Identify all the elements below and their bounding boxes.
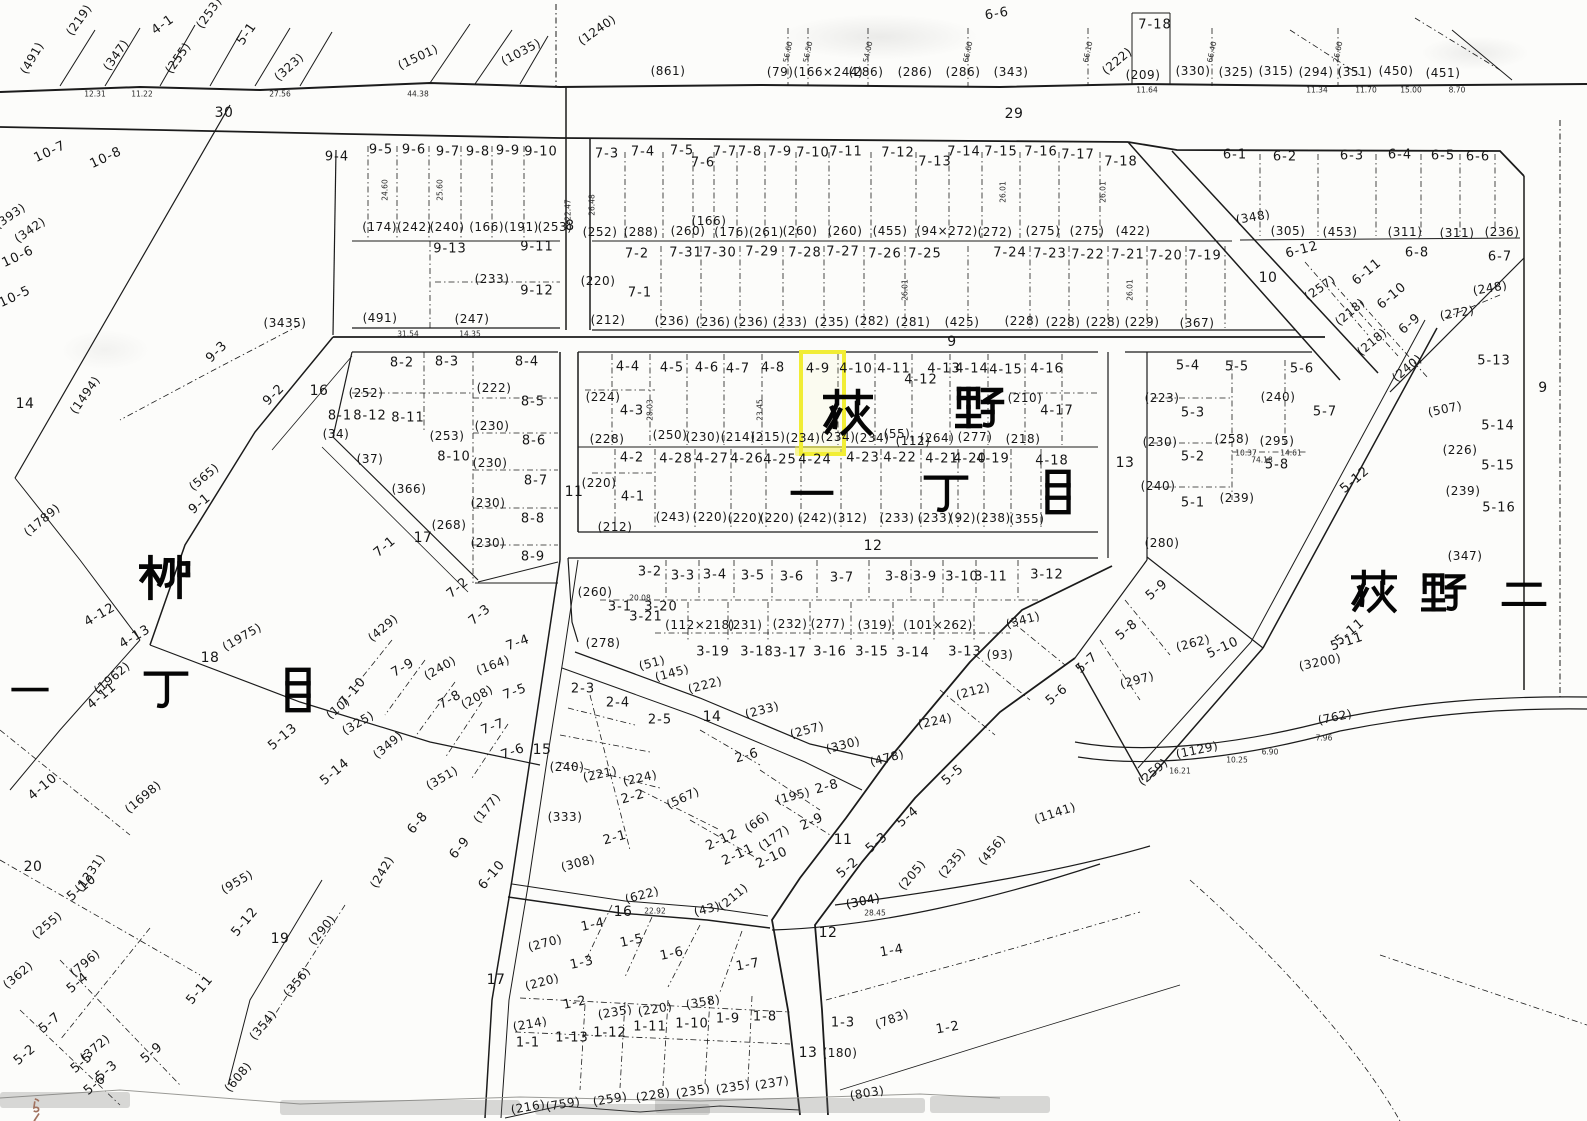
parcel-label: 5-8 bbox=[1265, 459, 1289, 472]
parcel-label: 8-6 bbox=[522, 435, 546, 448]
district-kanji bbox=[822, 388, 874, 438]
road-number: 8 bbox=[565, 219, 574, 233]
parcel-label: 5-13 bbox=[1477, 355, 1511, 368]
parcel-label: 7-1 bbox=[628, 287, 652, 300]
parcel-label: 7-2 bbox=[625, 248, 649, 261]
parcel-label: 7-4 bbox=[631, 146, 655, 159]
parcel-label: 7-22 bbox=[1071, 249, 1105, 262]
area-label: (101×262) bbox=[903, 619, 973, 631]
parcel-label: 6-6 bbox=[984, 5, 1010, 22]
parcel-label: 5-6 bbox=[1290, 363, 1314, 376]
area-label: (286) bbox=[946, 66, 981, 78]
area-label: (220) bbox=[582, 477, 617, 489]
road-number: 29 bbox=[1005, 107, 1024, 121]
road-number: 9 bbox=[1538, 381, 1547, 395]
area-label: (253) bbox=[430, 430, 465, 442]
area-label: (93) bbox=[987, 649, 1014, 661]
parcel-label: 3-16 bbox=[813, 646, 847, 659]
road-number: 16 bbox=[310, 384, 329, 398]
parcel-label: 6-8 bbox=[1405, 247, 1429, 260]
parcel-label: 1-10 bbox=[675, 1018, 709, 1031]
area-label: (234) bbox=[786, 432, 821, 444]
area-label: (453) bbox=[1323, 226, 1358, 238]
parcel-label: 7-19 bbox=[1188, 250, 1222, 263]
road-number: 9 bbox=[947, 335, 956, 349]
parcel-label: 6-4 bbox=[1388, 149, 1412, 162]
area-label: (319) bbox=[858, 619, 893, 631]
parcel-label: 4-8 bbox=[761, 362, 785, 375]
area-label: (260) bbox=[783, 225, 818, 237]
area-label: (325) bbox=[1219, 66, 1254, 78]
parcel-label: 7-11 bbox=[829, 146, 863, 159]
parcel-label: 7-17 bbox=[1061, 149, 1095, 162]
parcel-label: 3-6 bbox=[780, 571, 804, 584]
parcel-label: 9-8 bbox=[466, 146, 490, 159]
parcel-label: 4-5 bbox=[660, 362, 684, 375]
parcel-label: 4-22 bbox=[883, 452, 917, 465]
parcel-label: 7-12 bbox=[881, 147, 915, 160]
parcel-label: 7-27 bbox=[826, 246, 860, 259]
measurement: 24.60 bbox=[381, 179, 389, 200]
area-label: (450) bbox=[1379, 65, 1414, 77]
parcel-label: 7-7 bbox=[713, 146, 737, 159]
parcel-label: 3-11 bbox=[974, 571, 1008, 584]
area-label: (112×218) bbox=[665, 619, 735, 631]
road-number: 10 bbox=[1259, 271, 1278, 285]
area-label: (231) bbox=[728, 619, 763, 631]
area-label: (230) bbox=[1143, 436, 1178, 448]
measurement: 11.34 bbox=[1306, 86, 1327, 94]
area-label: (210) bbox=[1008, 392, 1043, 404]
area-label: (455) bbox=[873, 225, 908, 237]
road-number: 14 bbox=[703, 710, 722, 724]
parcel-label: 5-14 bbox=[1481, 420, 1515, 433]
area-label: (315) bbox=[1259, 65, 1294, 77]
area-label: (236) bbox=[696, 316, 731, 328]
parcel-label: 4-10 bbox=[839, 363, 873, 376]
measurement: 14.61 bbox=[1280, 449, 1301, 457]
road-number: 13 bbox=[799, 1046, 818, 1060]
measurement: 28.45 bbox=[864, 909, 885, 917]
parcel-label: 5-3 bbox=[1181, 407, 1205, 420]
parcel-label: 7-26 bbox=[868, 248, 902, 261]
measurement: 16.21 bbox=[1169, 767, 1190, 775]
parcel-label: 3-2 bbox=[638, 566, 662, 579]
parcel-label: 2-4 bbox=[606, 697, 630, 710]
parcel-label: 4-1 bbox=[621, 491, 645, 504]
parcel-label: 3-8 bbox=[885, 571, 909, 584]
area-label: (311) bbox=[1388, 226, 1423, 238]
measurement: 28.03 bbox=[646, 399, 654, 420]
parcel-label: 8-11 bbox=[391, 412, 425, 425]
area-label: (286) bbox=[849, 66, 884, 78]
area-label: (260) bbox=[828, 225, 863, 237]
area-label: (220) bbox=[693, 511, 728, 523]
parcel-label: 1-4 bbox=[879, 942, 905, 959]
scan-artifact bbox=[280, 1100, 520, 1115]
measurement: 8.70 bbox=[1449, 86, 1466, 94]
district-kanji bbox=[954, 382, 1006, 432]
road-number: 15 bbox=[533, 743, 552, 757]
area-label: (34) bbox=[323, 428, 350, 440]
area-label: (264) bbox=[920, 432, 955, 444]
area-label: (228) bbox=[590, 433, 625, 445]
parcel-label: 3-5 bbox=[741, 570, 765, 583]
parcel-label: 7-18 bbox=[1104, 156, 1138, 169]
area-label: (275) bbox=[1026, 225, 1061, 237]
parcel-label: 7-16 bbox=[1024, 146, 1058, 159]
measurement: 7.96 bbox=[1316, 734, 1333, 742]
area-label: (230) bbox=[471, 537, 506, 549]
area-label: (282) bbox=[855, 315, 890, 327]
parcel-label: 1-3 bbox=[831, 1017, 855, 1030]
area-label: (305) bbox=[1271, 225, 1306, 237]
parcel-label: 6-7 bbox=[1488, 251, 1512, 264]
area-label: (94×272) bbox=[916, 225, 978, 237]
measurement: 6.90 bbox=[1262, 748, 1279, 756]
area-label: (236) bbox=[734, 316, 769, 328]
road-number: 18 bbox=[201, 651, 220, 665]
parcel-label: 7-15 bbox=[984, 146, 1018, 159]
parcel-label: 4-14 bbox=[955, 363, 989, 376]
area-label: (223) bbox=[1145, 392, 1180, 404]
parcel-label: 4-25 bbox=[763, 454, 797, 467]
parcel-label: 9-9 bbox=[496, 145, 520, 158]
parcel-label: 4-4 bbox=[616, 361, 640, 374]
parcel-label: 2-3 bbox=[571, 683, 595, 696]
parcel-label: 7-30 bbox=[703, 247, 737, 260]
watermark-text bbox=[29, 1098, 44, 1121]
parcel-label: 3-18 bbox=[740, 646, 774, 659]
district-kanji bbox=[141, 664, 191, 712]
road-number: 13 bbox=[1116, 456, 1135, 470]
measurement: 44.38 bbox=[407, 90, 428, 98]
area-label: (258) bbox=[1215, 433, 1250, 445]
district-kanji bbox=[138, 551, 192, 603]
parcel-label: 5-2 bbox=[1181, 451, 1205, 464]
parcel-label: 7-23 bbox=[1033, 248, 1067, 261]
parcel-label: 3-12 bbox=[1030, 569, 1064, 582]
parcel-label: 8-3 bbox=[435, 356, 459, 369]
measurement: 31.54 bbox=[397, 330, 418, 338]
parcel-label: 8-1 bbox=[328, 410, 352, 423]
parcel-label: 3-15 bbox=[855, 646, 889, 659]
area-label: (229) bbox=[1125, 316, 1160, 328]
road-number: 19 bbox=[271, 932, 290, 946]
area-label: (37) bbox=[357, 453, 384, 465]
area-label: (347) bbox=[1448, 550, 1483, 562]
area-label: (228) bbox=[1086, 316, 1121, 328]
parcel-label: 4-26 bbox=[730, 453, 764, 466]
area-label: (180) bbox=[823, 1047, 858, 1059]
area-label: (230) bbox=[686, 431, 721, 443]
cadastral-map: (491)(219)(347)4-1(255)(253)5-1(323)(150… bbox=[0, 0, 1587, 1121]
watermark bbox=[8, 1098, 44, 1121]
parcel-label: 6-3 bbox=[1340, 150, 1364, 163]
area-label: (861) bbox=[651, 65, 686, 77]
parcel-label: 7-29 bbox=[745, 246, 779, 259]
road-number: 17 bbox=[414, 531, 433, 545]
parcel-label: 1-8 bbox=[753, 1011, 777, 1024]
area-label: (333) bbox=[548, 811, 583, 823]
area-label: (230) bbox=[475, 420, 510, 432]
district-kanji bbox=[273, 666, 323, 714]
scan-artifact bbox=[655, 1098, 925, 1113]
road-number: 11 bbox=[834, 833, 853, 847]
area-label: (277) bbox=[958, 431, 993, 443]
area-label: (212) bbox=[591, 314, 626, 326]
measurement: 15.00 bbox=[1400, 86, 1421, 94]
area-label: (233) bbox=[880, 512, 915, 524]
parcel-label: 1-9 bbox=[716, 1013, 740, 1026]
scan-artifact bbox=[930, 1096, 1050, 1113]
measurement: 27.56 bbox=[269, 90, 290, 98]
measurement: 26.01 bbox=[1099, 181, 1107, 202]
parcel-label: 6-5 bbox=[1431, 150, 1455, 163]
parcel-label: 3-19 bbox=[696, 646, 730, 659]
area-label: (220) bbox=[728, 512, 763, 524]
area-label: (250) bbox=[653, 429, 688, 441]
parcel-label: 2-5 bbox=[648, 714, 672, 727]
area-label: (252) bbox=[583, 226, 618, 238]
measurement: 22.47 bbox=[564, 199, 572, 220]
area-label: (280) bbox=[1145, 537, 1180, 549]
area-label: (222) bbox=[477, 382, 512, 394]
area-label: (215) bbox=[751, 431, 786, 443]
road-number: 14 bbox=[16, 397, 35, 411]
district-kanji bbox=[1420, 569, 1468, 615]
parcel-label: 4-27 bbox=[695, 453, 729, 466]
parcel-label: 7-3 bbox=[595, 148, 619, 161]
parcel-label: 8-8 bbox=[521, 513, 545, 526]
area-label: (252) bbox=[349, 387, 384, 399]
area-label: (268) bbox=[432, 519, 467, 531]
area-label: (209) bbox=[1126, 69, 1161, 81]
parcel-label: 8-4 bbox=[515, 356, 539, 369]
area-label: (311) bbox=[1440, 227, 1475, 239]
parcel-label: 7-25 bbox=[908, 248, 942, 261]
area-label: (224) bbox=[586, 391, 621, 403]
road-number: 30 bbox=[215, 106, 234, 120]
area-label: (240) bbox=[550, 761, 585, 773]
area-label: (236) bbox=[1485, 226, 1520, 238]
parcel-label: 7-21 bbox=[1111, 249, 1145, 262]
parcel-label: 8-10 bbox=[437, 451, 471, 464]
parcel-label: 7-9 bbox=[768, 146, 792, 159]
area-label: (277) bbox=[811, 618, 846, 630]
parcel-label: 9-7 bbox=[436, 146, 460, 159]
parcel-label: 5-16 bbox=[1482, 502, 1516, 515]
parcel-label: 4-23 bbox=[846, 452, 880, 465]
parcel-label: 6-6 bbox=[1466, 151, 1490, 164]
parcel-label: 1-2 bbox=[935, 1019, 961, 1036]
area-label: (343) bbox=[994, 66, 1029, 78]
area-label: (240) bbox=[430, 221, 465, 233]
parcel-label: 3-17 bbox=[773, 647, 807, 660]
area-label: (240) bbox=[1261, 391, 1296, 403]
measurement: 26.48 bbox=[588, 194, 596, 215]
area-label: (228) bbox=[1005, 315, 1040, 327]
road-number: 12 bbox=[864, 539, 883, 553]
parcel-label: 1-1 bbox=[516, 1037, 540, 1050]
area-label: (233) bbox=[773, 316, 808, 328]
parcel-label: 4-24 bbox=[798, 454, 832, 467]
measurement: 26.01 bbox=[901, 279, 909, 300]
area-label: (233) bbox=[475, 273, 510, 285]
district-kanji bbox=[9, 668, 51, 708]
area-label: (278) bbox=[586, 637, 621, 649]
area-label: (176)(261) bbox=[714, 226, 784, 238]
district-kanji bbox=[1500, 569, 1548, 615]
area-label: (3435) bbox=[264, 317, 307, 329]
measurement: 26.01 bbox=[1126, 279, 1134, 300]
parcel-label: 7-10 bbox=[796, 147, 830, 160]
parcel-label: 4-28 bbox=[659, 453, 693, 466]
area-label: (239) bbox=[1446, 485, 1481, 497]
district-kanji bbox=[1033, 468, 1083, 516]
measurement: 11.70 bbox=[1355, 86, 1376, 94]
area-label: (312) bbox=[833, 512, 868, 524]
parcel-label: 5-4 bbox=[1176, 360, 1200, 373]
district-kanji bbox=[788, 468, 836, 514]
area-label: (232) bbox=[773, 618, 808, 630]
parcel-label: 7-8 bbox=[738, 146, 762, 159]
area-label: (166)(191) bbox=[469, 221, 539, 233]
area-label: (230) bbox=[471, 497, 506, 509]
parcel-label: 4-17 bbox=[1040, 405, 1074, 418]
parcel-label: 8-12 bbox=[353, 410, 387, 423]
parcel-label: 9-4 bbox=[325, 151, 349, 164]
area-label: (422) bbox=[1116, 225, 1151, 237]
parcel-label: 6-1 bbox=[1223, 149, 1247, 162]
area-label: (294) bbox=[1299, 66, 1334, 78]
measurement: 11.22 bbox=[131, 90, 152, 98]
area-label: (281) bbox=[896, 316, 931, 328]
district-kanji bbox=[1350, 569, 1398, 615]
parcel-label: 4-2 bbox=[620, 452, 644, 465]
measurement: 25.60 bbox=[436, 179, 444, 200]
parcel-label: 4-7 bbox=[726, 363, 750, 376]
measurement: 12.31 bbox=[84, 90, 105, 98]
district-kanji bbox=[921, 468, 971, 516]
parcel-label: 4-9 bbox=[806, 363, 830, 376]
area-label: (272) bbox=[978, 226, 1013, 238]
measurement: 14.35 bbox=[459, 330, 480, 338]
area-label: (491) bbox=[363, 312, 398, 324]
parcel-label: 5-7 bbox=[1313, 406, 1337, 419]
measurement: 20.08 bbox=[629, 594, 650, 602]
parcel-label: 9-13 bbox=[433, 243, 467, 256]
area-label: (260) bbox=[578, 586, 613, 598]
road-number: 20 bbox=[24, 860, 43, 874]
parcel-label: 8-7 bbox=[524, 475, 548, 488]
measurement: 22.92 bbox=[644, 907, 665, 915]
parcel-label: 4-3 bbox=[620, 405, 644, 418]
area-label: (218) bbox=[1006, 433, 1041, 445]
area-label: (275) bbox=[1070, 225, 1105, 237]
parcel-label: 8-5 bbox=[521, 396, 545, 409]
parcel-label: 3-13 bbox=[948, 646, 982, 659]
parcel-label: 3-9 bbox=[913, 571, 937, 584]
parcel-label: 1-13 bbox=[555, 1032, 589, 1045]
area-label: (295) bbox=[1260, 435, 1295, 447]
area-label: (228) bbox=[1046, 316, 1081, 328]
area-label: (288) bbox=[624, 226, 659, 238]
parcel-label: 7-14 bbox=[947, 146, 981, 159]
road-number: 17 bbox=[487, 973, 506, 987]
parcel-label: 7-28 bbox=[788, 247, 822, 260]
parcel-label: 7-31 bbox=[669, 247, 703, 260]
parcel-label: 9-12 bbox=[520, 285, 554, 298]
road-number: 11 bbox=[565, 485, 584, 499]
area-label: (174)(242) bbox=[362, 221, 432, 233]
area-label: (366) bbox=[392, 483, 427, 495]
area-label: (425) bbox=[945, 316, 980, 328]
parcel-label: 3-14 bbox=[896, 647, 930, 660]
measurement: 10.25 bbox=[1226, 756, 1247, 764]
parcel-label: 7-18 bbox=[1138, 19, 1172, 32]
parcel-label: 8-9 bbox=[521, 551, 545, 564]
parcel-boundary-lines bbox=[0, 0, 1587, 1121]
area-label: (243) bbox=[656, 511, 691, 523]
measurement: 26.01 bbox=[999, 181, 1007, 202]
parcel-label: 9-6 bbox=[402, 144, 426, 157]
parcel-label: 7-6 bbox=[691, 157, 715, 170]
area-label: (220) bbox=[581, 275, 616, 287]
measurement: 11.64 bbox=[1136, 86, 1157, 94]
parcel-label: 3-3 bbox=[671, 570, 695, 583]
parcel-label: 1-12 bbox=[593, 1027, 627, 1040]
parcel-label: 3-4 bbox=[703, 569, 727, 582]
area-label: (212) bbox=[598, 521, 633, 533]
parcel-label: 8-2 bbox=[390, 357, 414, 370]
parcel-label: 9-11 bbox=[520, 241, 554, 254]
parcel-label: 4-15 bbox=[989, 364, 1023, 377]
parcel-label: 4-6 bbox=[695, 362, 719, 375]
parcel-label: 1-7 bbox=[735, 956, 761, 973]
area-label: (230) bbox=[473, 457, 508, 469]
parcel-label: 9-10 bbox=[524, 146, 558, 159]
parcel-label: 3-7 bbox=[830, 572, 854, 585]
area-label: (235) bbox=[815, 316, 850, 328]
parcel-label: 4-18 bbox=[1035, 455, 1069, 468]
parcel-label: 4-19 bbox=[976, 453, 1010, 466]
parcel-label: 5-15 bbox=[1481, 460, 1515, 473]
parcel-label: 5-1 bbox=[1181, 497, 1205, 510]
parcel-label: 1-11 bbox=[633, 1021, 667, 1034]
measurement: 23.45 bbox=[756, 399, 764, 420]
parcel-label: 7-24 bbox=[993, 247, 1027, 260]
parcel-label: 6-2 bbox=[1273, 151, 1297, 164]
area-label: (367) bbox=[1180, 317, 1215, 329]
area-label: (351) bbox=[1338, 66, 1373, 78]
area-label: (226) bbox=[1443, 444, 1478, 456]
parcel-label: 3-21 bbox=[629, 611, 663, 624]
parcel-label: 7-20 bbox=[1149, 250, 1183, 263]
area-label: (239) bbox=[1220, 492, 1255, 504]
area-label: (240) bbox=[1141, 480, 1176, 492]
parcel-label: 4-16 bbox=[1030, 363, 1064, 376]
area-label: (330) bbox=[1176, 65, 1211, 77]
area-label: (247) bbox=[455, 313, 490, 325]
area-label: (286) bbox=[898, 66, 933, 78]
area-label: (451) bbox=[1426, 67, 1461, 79]
road-number: 12 bbox=[819, 926, 838, 940]
road-number: 16 bbox=[614, 905, 633, 919]
area-label: (236) bbox=[655, 315, 690, 327]
parcel-label: 5-5 bbox=[1225, 361, 1249, 374]
parcel-label: 9-5 bbox=[369, 144, 393, 157]
